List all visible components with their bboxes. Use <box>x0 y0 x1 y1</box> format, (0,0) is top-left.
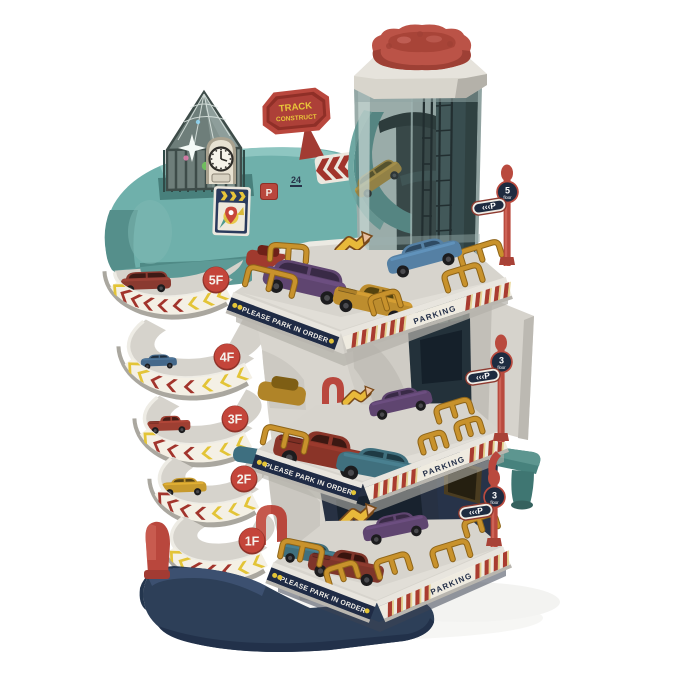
svg-text:floor: floor <box>503 195 512 200</box>
svg-text:4F: 4F <box>220 350 235 364</box>
svg-text:1F: 1F <box>245 534 260 548</box>
svg-text:3: 3 <box>492 491 497 501</box>
svg-text:P: P <box>266 188 273 199</box>
svg-text:3F: 3F <box>228 412 243 426</box>
svg-text:24: 24 <box>291 175 301 185</box>
svg-text:2F: 2F <box>237 472 252 486</box>
svg-text:5: 5 <box>505 186 510 196</box>
svg-text:floor: floor <box>497 365 506 370</box>
svg-text:3: 3 <box>499 356 504 366</box>
svg-text:floor: floor <box>490 500 499 505</box>
svg-text:5F: 5F <box>209 273 224 287</box>
